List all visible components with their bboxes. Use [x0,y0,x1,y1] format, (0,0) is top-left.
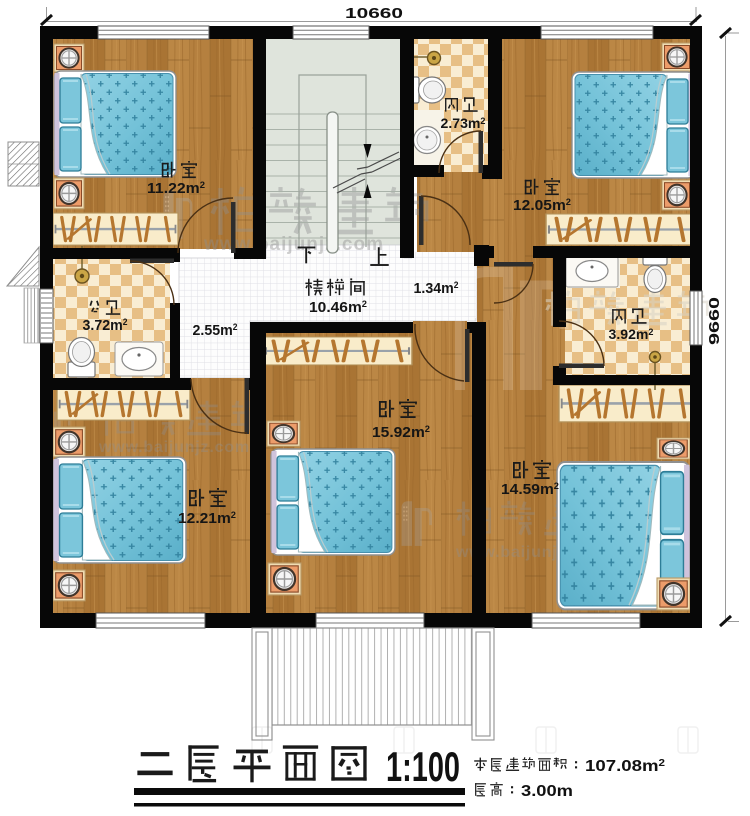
svg-text:www.baijunjz.com: www.baijunjz.com [203,234,384,255]
svg-text:107.08m2: 107.08m2 [585,758,666,775]
svg-text:12.05m2: 12.05m2 [513,197,571,214]
svg-text:12.21m2: 12.21m2 [178,510,236,527]
svg-text:9660: 9660 [706,297,723,345]
svg-text:10660: 10660 [345,5,403,22]
svg-text:3.92m2: 3.92m2 [609,326,654,342]
svg-text:www.baijunjz.com: www.baijunjz.com [98,439,250,456]
svg-text:10.46m2: 10.46m2 [309,299,367,316]
svg-text:2.73m2: 2.73m2 [441,115,486,131]
svg-text:15.92m2: 15.92m2 [372,424,430,441]
svg-text:2.55m2: 2.55m2 [193,322,238,339]
svg-text:1:100: 1:100 [386,743,460,790]
svg-text:1.34m2: 1.34m2 [414,280,459,297]
svg-text:3.00m: 3.00m [521,783,573,800]
svg-text:11.22m2: 11.22m2 [147,180,205,197]
svg-text:14.59m2: 14.59m2 [501,481,559,498]
svg-text:3.72m2: 3.72m2 [82,317,127,334]
